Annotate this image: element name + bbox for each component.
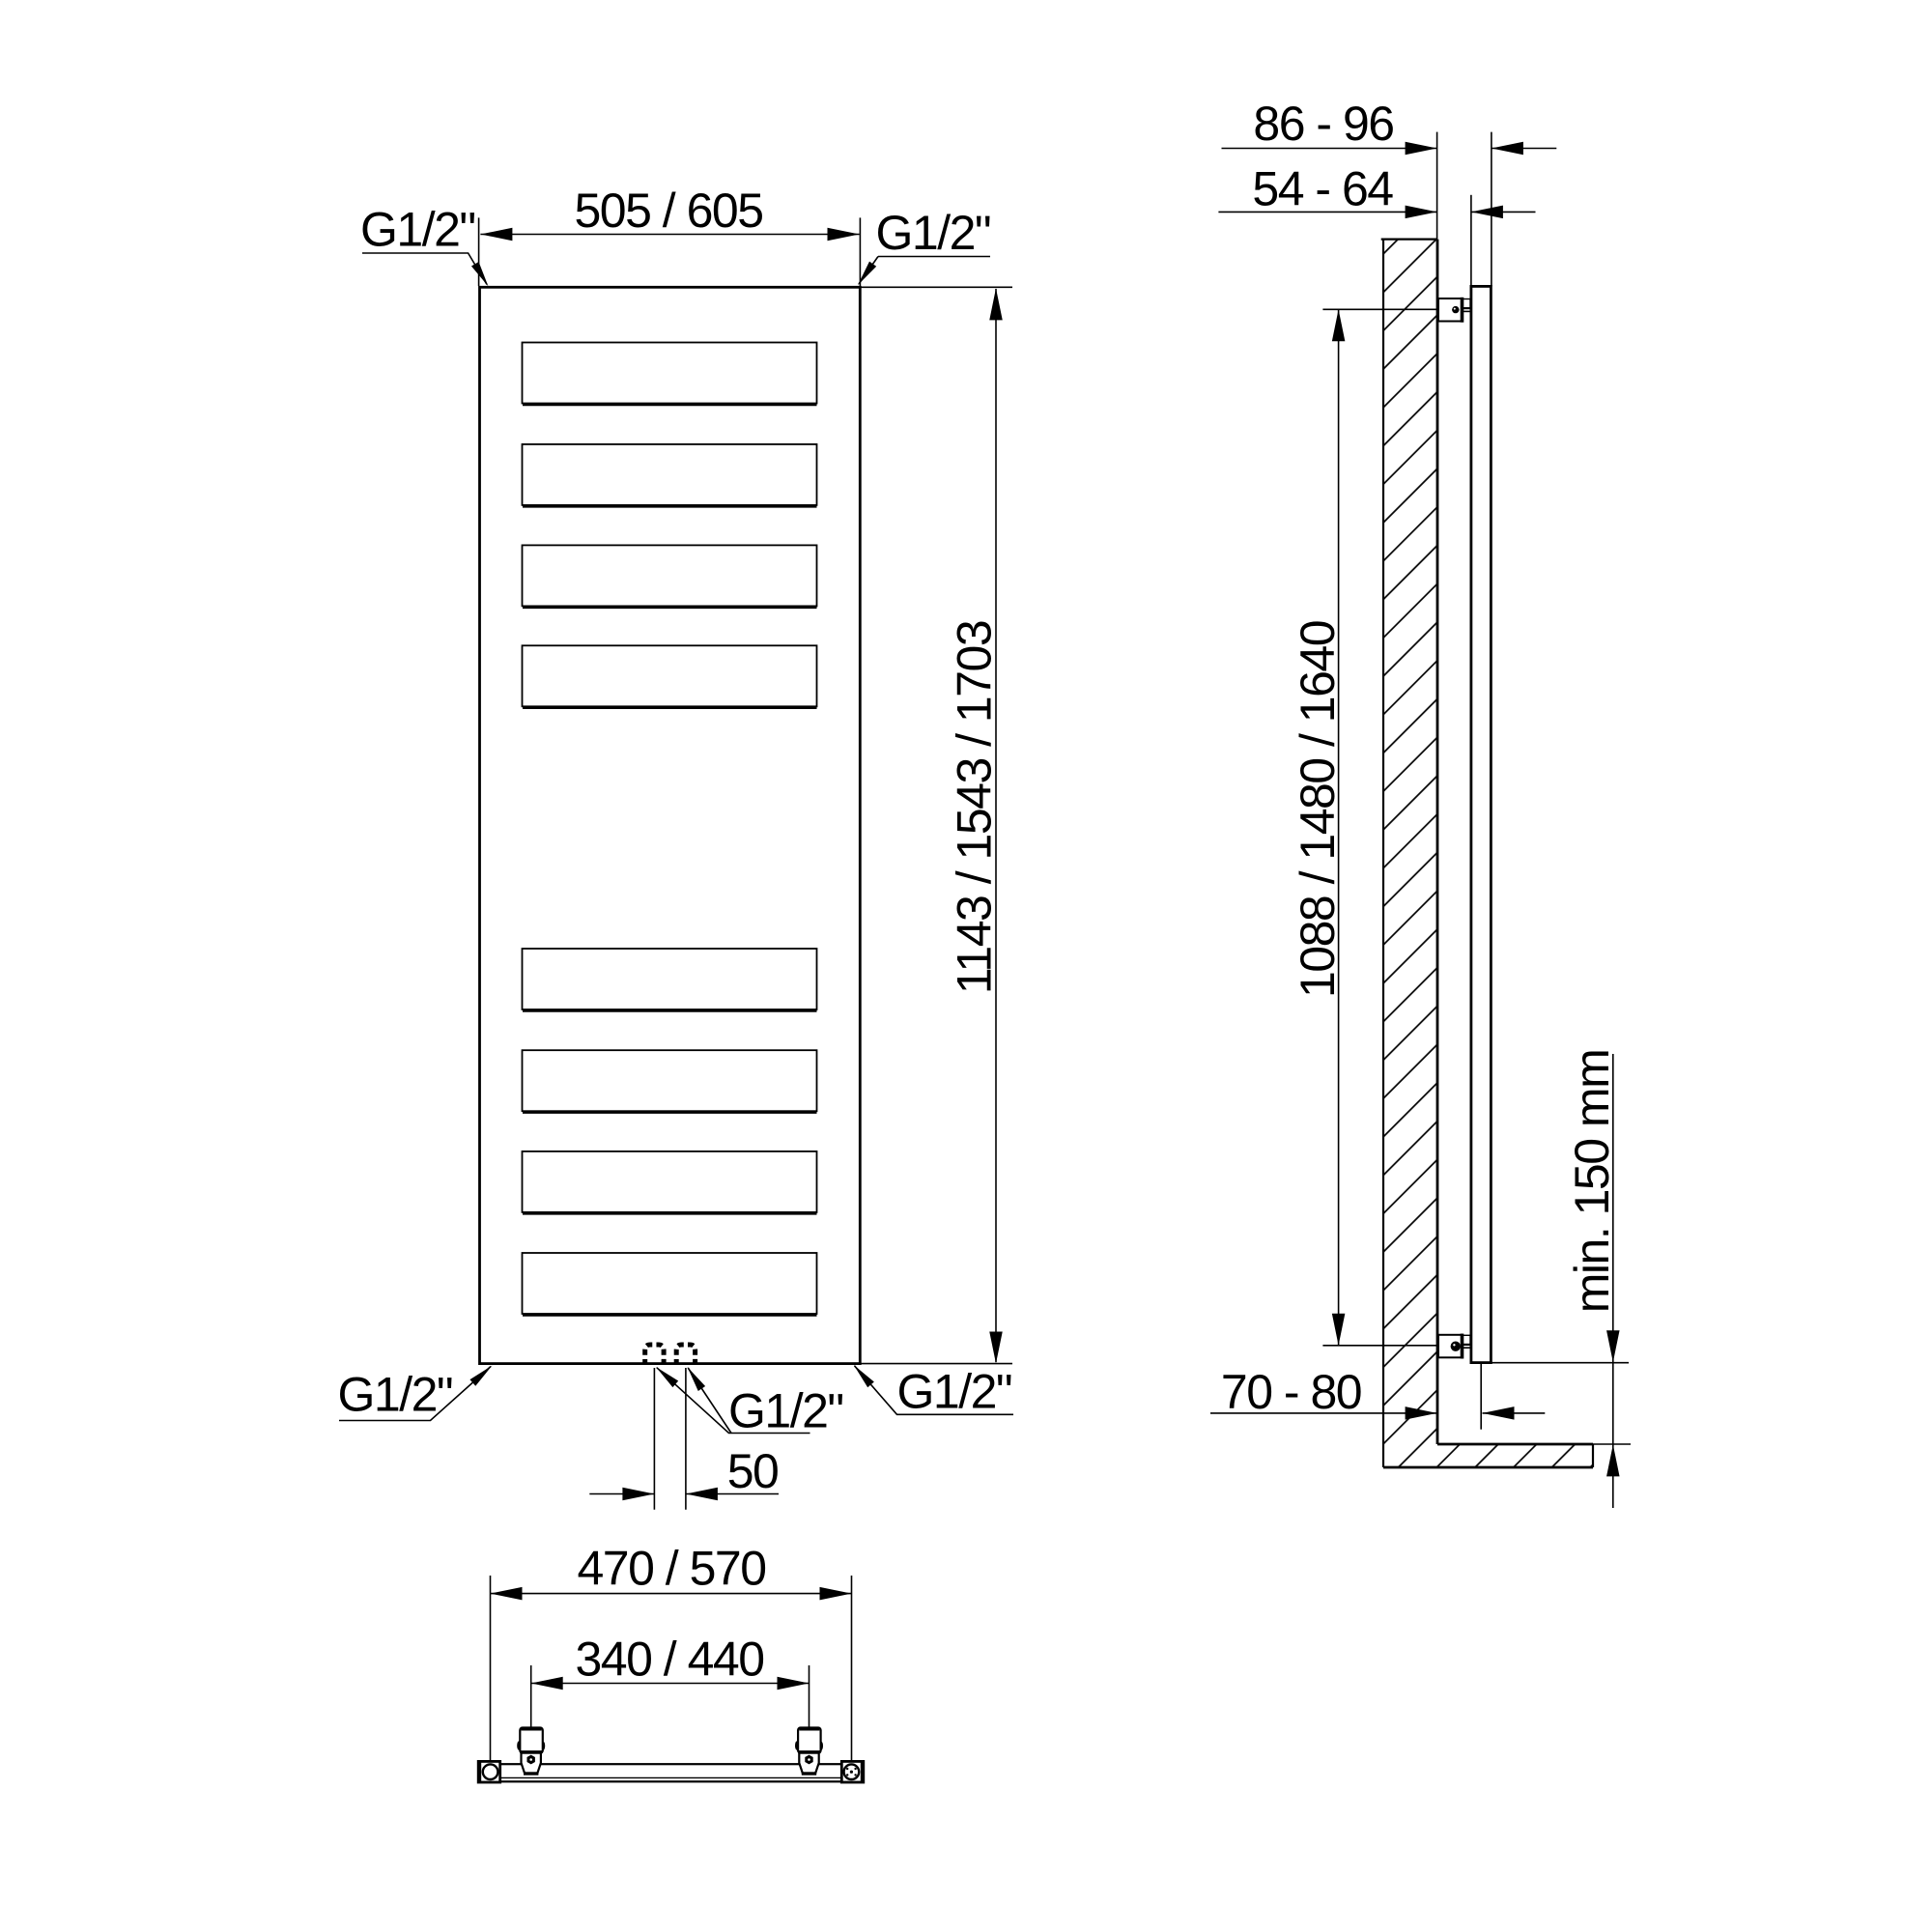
- svg-text:G1/2": G1/2": [897, 1364, 1012, 1418]
- svg-text:G1/2": G1/2": [876, 206, 991, 260]
- svg-text:470 / 570: 470 / 570: [577, 1542, 765, 1596]
- svg-text:50: 50: [727, 1444, 779, 1498]
- svg-text:340 / 440: 340 / 440: [575, 1633, 763, 1687]
- svg-text:70 - 80: 70 - 80: [1221, 1365, 1361, 1419]
- svg-text:505 / 605: 505 / 605: [574, 184, 762, 238]
- svg-text:min. 150 mm: min. 150 mm: [1565, 1050, 1619, 1313]
- svg-text:1143 / 1543 / 1703: 1143 / 1543 / 1703: [948, 621, 1002, 994]
- svg-text:G1/2": G1/2": [728, 1384, 843, 1438]
- svg-text:G1/2": G1/2": [338, 1368, 453, 1422]
- svg-text:86 - 96: 86 - 96: [1253, 97, 1393, 151]
- svg-text:1088 / 1480 / 1640: 1088 / 1480 / 1640: [1291, 621, 1345, 998]
- svg-text:G1/2": G1/2": [360, 203, 475, 257]
- svg-text:54 - 64: 54 - 64: [1252, 162, 1393, 216]
